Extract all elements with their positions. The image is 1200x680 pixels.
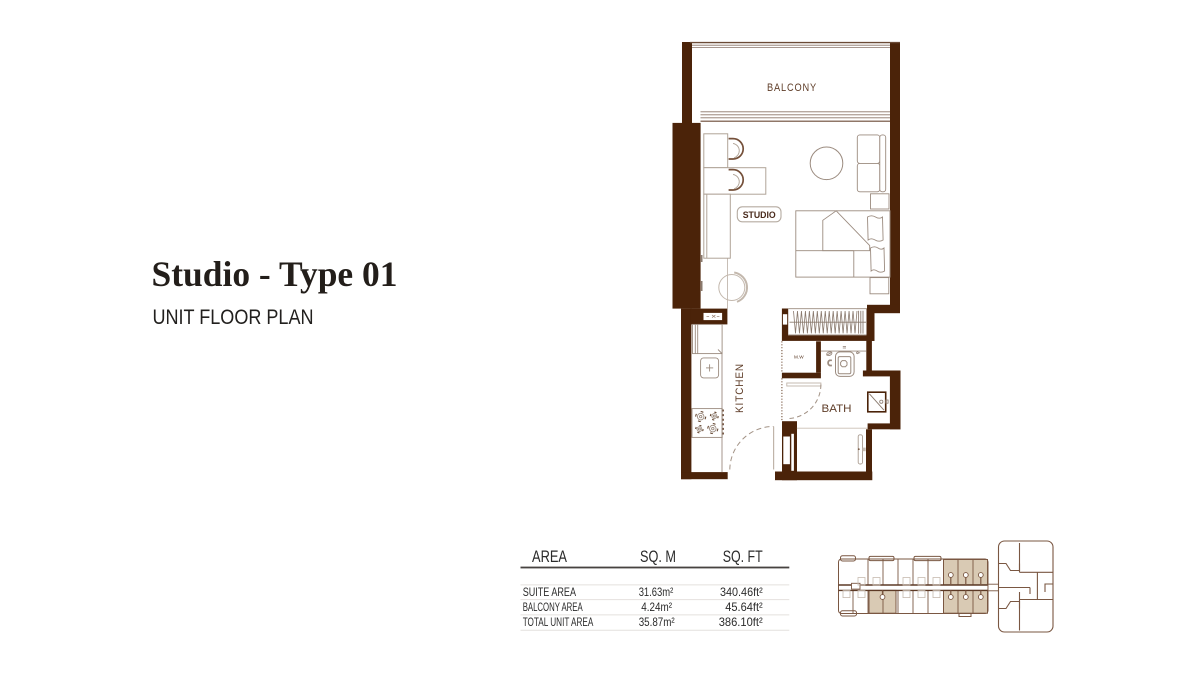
- svg-text:SQ. FT: SQ. FT: [723, 548, 763, 566]
- svg-text:SUITE AREA: SUITE AREA: [523, 585, 576, 599]
- svg-text:35.87m²: 35.87m²: [639, 615, 675, 629]
- svg-text:TOTAL UNIT AREA: TOTAL UNIT AREA: [523, 615, 594, 629]
- svg-text:M.W: M.W: [794, 354, 804, 359]
- svg-text:SQ. M: SQ. M: [640, 548, 676, 566]
- svg-text:BALCONY: BALCONY: [767, 82, 817, 94]
- svg-text:BATH: BATH: [822, 403, 852, 415]
- svg-text:4.24m²: 4.24m²: [641, 600, 672, 614]
- svg-text:KITCHEN: KITCHEN: [734, 363, 746, 413]
- svg-text:STUDIO: STUDIO: [743, 210, 776, 221]
- svg-text:AREA: AREA: [532, 548, 567, 566]
- svg-text:340.46ft²: 340.46ft²: [720, 585, 763, 599]
- svg-text:UNIT FLOOR PLAN: UNIT FLOOR PLAN: [153, 306, 314, 329]
- svg-text:45.64ft²: 45.64ft²: [725, 600, 762, 614]
- svg-text:386.10ft²: 386.10ft²: [719, 615, 763, 629]
- svg-text:BALCONY AREA: BALCONY AREA: [523, 600, 583, 614]
- svg-text:Studio - Type 01: Studio - Type 01: [152, 254, 398, 294]
- svg-text:31.63m²: 31.63m²: [639, 585, 674, 599]
